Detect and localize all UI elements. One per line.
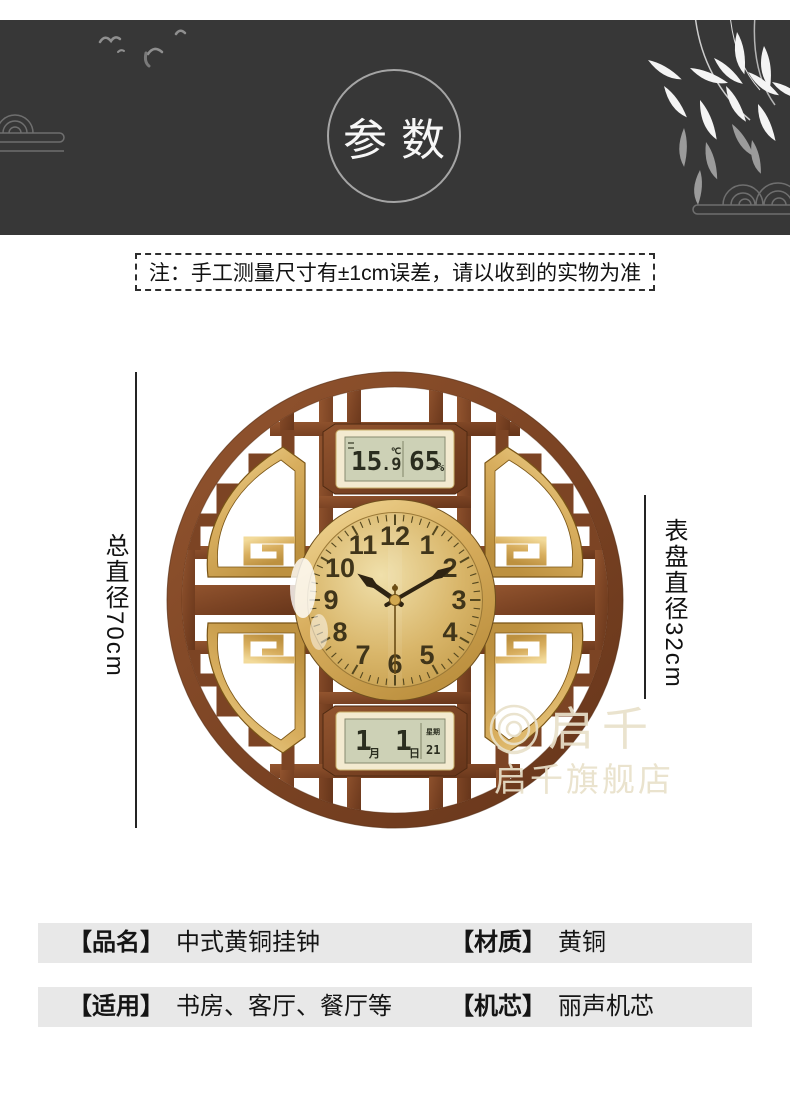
top-lcd: 15 .9 ℃ 65 % <box>323 424 467 494</box>
svg-text:8: 8 <box>332 617 347 647</box>
lcd-temperature-decimal: .9 <box>381 455 401 475</box>
header-banner: 参数 <box>0 20 790 235</box>
lcd-humidity-unit: % <box>437 460 445 474</box>
spec-value: 丽声机芯 <box>558 993 654 1020</box>
lcd-month-unit: 月 <box>368 747 380 760</box>
svg-text:7: 7 <box>355 640 370 670</box>
note-text: 注：手工测量尺寸有±1cm误差，请以收到的实物为准 <box>149 257 641 287</box>
cloud-left-icon <box>0 115 64 151</box>
dimension-line-total <box>135 372 137 828</box>
spec-cell: 【材质】黄铜 <box>450 923 606 963</box>
watermark: 启千 启千旗舰店 <box>484 693 674 801</box>
spec-row: 【适用】书房、客厅、餐厅等 【机芯】丽声机芯 <box>38 987 752 1027</box>
spec-label: 【机芯】 <box>450 993 546 1020</box>
birds-icon <box>100 31 185 66</box>
store-watermark-text: 启千旗舰店 <box>494 753 674 801</box>
lcd-day-unit: 日 <box>409 747 420 760</box>
svg-text:5: 5 <box>419 640 434 670</box>
svg-text:1: 1 <box>419 530 434 560</box>
dial-center-cap <box>390 595 401 606</box>
dimension-line-dial <box>644 495 646 699</box>
spec-row: 【品名】中式黄铜挂钟 【材质】黄铜 <box>38 923 752 963</box>
dimension-label-dial: 表盘直径32cm <box>656 518 691 689</box>
svg-text:11: 11 <box>349 530 378 560</box>
parameters-badge-label: 参数 <box>329 104 459 168</box>
cloud-right-icon <box>693 183 790 214</box>
spec-cell: 【机芯】丽声机芯 <box>450 987 654 1027</box>
svg-text:4: 4 <box>442 617 457 647</box>
dimension-label-total: 总直径70cm <box>97 533 132 678</box>
lcd-temperature: 15 <box>351 447 382 477</box>
note-box: 注：手工测量尺寸有±1cm误差，请以收到的实物为准 <box>135 253 655 291</box>
glass-glare <box>290 558 316 618</box>
svg-text:9: 9 <box>323 585 338 615</box>
parameters-badge: 参数 <box>327 69 461 203</box>
spec-label: 【材质】 <box>450 929 546 956</box>
lcd-humidity: 65 <box>409 447 440 477</box>
spec-value: 书房、客厅、餐厅等 <box>176 993 392 1020</box>
brand-watermark-text: 启千 <box>548 693 656 759</box>
bamboo-icon <box>645 20 790 205</box>
lcd-week-label: 星期 <box>426 727 440 736</box>
spec-label: 【品名】 <box>68 929 164 956</box>
spec-value: 黄铜 <box>558 929 606 956</box>
watermark-logo-icon <box>486 703 542 759</box>
spec-value: 中式黄铜挂钟 <box>176 929 320 956</box>
lcd-temperature-unit: ℃ <box>391 446 401 457</box>
lcd-week-value: 21 <box>426 743 440 757</box>
spec-label: 【适用】 <box>68 993 164 1020</box>
svg-text:12: 12 <box>380 521 410 551</box>
svg-text:3: 3 <box>451 585 466 615</box>
bottom-lcd: 1 月 1 日 星期 21 <box>323 706 467 776</box>
spec-cell: 【适用】书房、客厅、餐厅等 <box>68 987 392 1027</box>
spec-cell: 【品名】中式黄铜挂钟 <box>68 923 320 963</box>
page-canvas: 参数 注：手工测量尺寸有±1cm误差，请以收到的实物为准 总直径70cm 表盘直… <box>0 0 790 1093</box>
